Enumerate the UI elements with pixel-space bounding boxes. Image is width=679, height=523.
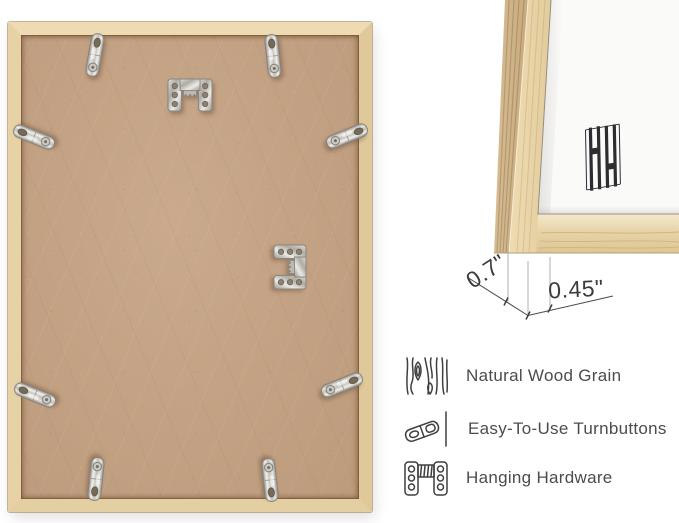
depth-dimension-label: 0.7" [461,249,511,294]
feature-label: Natural Wood Grain [466,366,621,386]
feature-label: Easy-To-Use Turnbuttons [468,419,667,439]
feature-label: Hanging Hardware [466,468,613,488]
feature-item: Natural Wood Grain [403,353,621,399]
feature-item: Easy-To-Use Turnbuttons [403,406,667,452]
frame-bottom-rail [535,228,679,253]
hanging-hardware-icon [403,457,449,499]
product-infographic: 0.7" 0.45" Natural Wood Grain [0,0,679,523]
turnbutton-icon [403,409,451,449]
dimension-annotation: 0.7" 0.45" [461,249,613,320]
frame-corner-detail: 0.7" 0.45" [430,0,679,330]
sawtooth-hanger [273,244,309,290]
sawtooth-hanger [167,76,213,112]
frame-inner-lip [535,214,679,228]
feature-item: Hanging Hardware [403,455,613,501]
face-dimension-label: 0.45" [548,275,605,304]
wood-grain-icon [403,356,449,396]
